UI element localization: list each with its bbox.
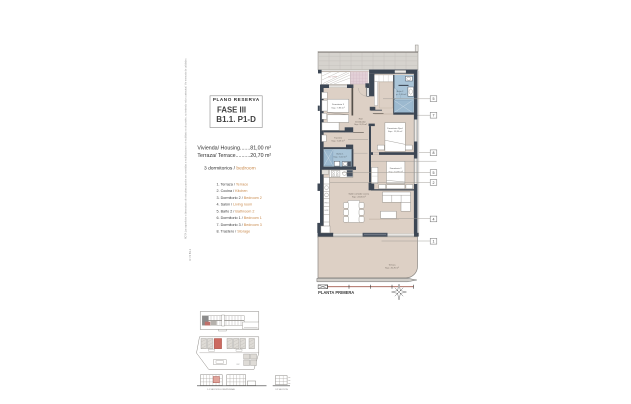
svg-text:Sup.: 8,70 m²: Sup.: 8,70 m² xyxy=(354,123,367,126)
svg-text:Baño 1: Baño 1 xyxy=(337,153,345,156)
svg-text:Terraza/ Terrace..........20,7: Terraza/ Terrace..........20,70 m² xyxy=(197,153,271,159)
svg-text:Sup.: 11,20 m²: Sup.: 11,20 m² xyxy=(388,130,402,133)
svg-text:NOTA:Las superficies y dimensi: NOTA:Las superficies y dimensiones de es… xyxy=(185,58,188,239)
svg-text:Sup.: 3,10 m²: Sup.: 3,10 m² xyxy=(333,156,346,159)
svg-text:Sup.: 24,35 m²: Sup.: 24,35 m² xyxy=(352,195,366,198)
svg-text:Terraza: Terraza xyxy=(389,264,397,267)
svg-text:8. Trastero / Storage: 8. Trastero / Storage xyxy=(217,230,251,234)
svg-text:7. Dormitorio 3 / Bedroom 3: 7. Dormitorio 3 / Bedroom 3 xyxy=(217,223,262,227)
svg-text:Sup.: 7,85 m²: Sup.: 7,85 m² xyxy=(331,107,344,110)
svg-text:Dormitorio 2: Dormitorio 2 xyxy=(390,167,403,170)
svg-text:5. Baño 2 / Bathroom 2: 5. Baño 2 / Bathroom 2 xyxy=(217,209,255,213)
svg-text:Sup.: 20,70 m²: Sup.: 20,70 m² xyxy=(385,267,399,270)
svg-text:1. Terraza / Terrace: 1. Terraza / Terrace xyxy=(217,182,249,186)
svg-text:7: 7 xyxy=(433,114,435,118)
svg-text:3. Dormitorio 2 / Bedroom 2: 3. Dormitorio 2 / Bedroom 2 xyxy=(217,196,262,200)
svg-text:Dormitorio 3: Dormitorio 3 xyxy=(332,103,345,106)
svg-text:Distribuidor: Distribuidor xyxy=(355,120,366,123)
svg-text:1-1 SECCION LONGITUDINAL: 1-1 SECCION LONGITUDINAL xyxy=(207,388,236,391)
svg-text:FRIG: FRIG xyxy=(324,203,329,205)
svg-text:PLANTA PRIMERA: PLANTA PRIMERA xyxy=(318,290,354,295)
svg-text:4: 4 xyxy=(433,217,435,221)
svg-text:nº 74 B1.1: nº 74 B1.1 xyxy=(188,248,192,261)
svg-text:5: 5 xyxy=(433,171,435,175)
svg-text:Salón comedor cocina: Salón comedor cocina xyxy=(349,193,370,196)
svg-text:2: 2 xyxy=(433,181,435,185)
svg-text:8: 8 xyxy=(433,151,435,155)
svg-text:2. Cocina / Kitchen: 2. Cocina / Kitchen xyxy=(217,189,248,193)
svg-text:Baño 2: Baño 2 xyxy=(397,90,404,93)
svg-text:PLANO RESERVA: PLANO RESERVA xyxy=(213,97,260,102)
svg-text:B1.1. P1-D: B1.1. P1-D xyxy=(216,115,256,124)
svg-text:Sup.: 3,05 m²: Sup.: 3,05 m² xyxy=(331,140,344,143)
svg-text:1: 1 xyxy=(433,240,435,244)
svg-text:Hall: Hall xyxy=(359,119,363,121)
svg-text:2-2 SECCION: 2-2 SECCION xyxy=(275,389,288,391)
svg-text:3 dormitorios / bedroom: 3 dormitorios / bedroom xyxy=(204,166,256,172)
svg-text:FASE III: FASE III xyxy=(217,105,246,114)
svg-text:Vivienda/ Housing.......81,00: Vivienda/ Housing.......81,00 m² xyxy=(197,146,271,152)
svg-text:5: 5 xyxy=(433,97,435,101)
svg-text:Trastero: Trastero xyxy=(334,137,343,140)
svg-text:6. Dormitorio 1 / Bedroom 1: 6. Dormitorio 1 / Bedroom 1 xyxy=(217,216,262,220)
svg-text:Sup.: 10,80 m²: Sup.: 10,80 m² xyxy=(389,170,404,173)
svg-text:4. Salón / Living room: 4. Salón / Living room xyxy=(217,203,253,207)
svg-text:Dormitorio Ppal.: Dormitorio Ppal. xyxy=(387,127,403,130)
